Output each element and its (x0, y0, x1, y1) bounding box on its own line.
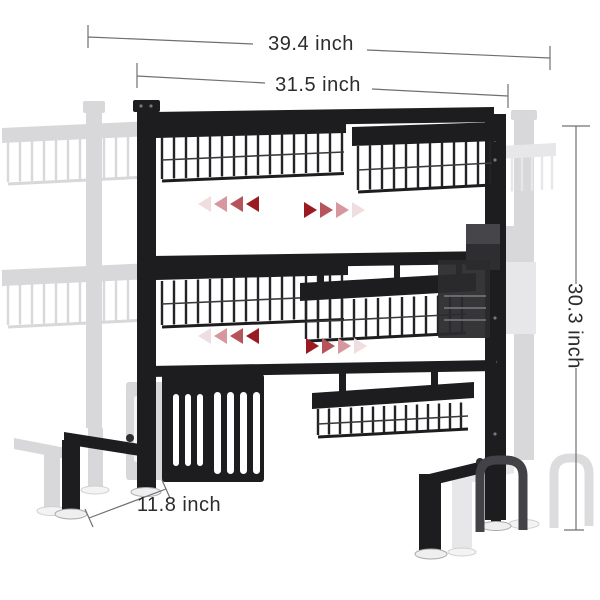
product-dimension-image: 39.4 inch 31.5 inch 30.3 inch 11.8 inch (0, 0, 600, 600)
ghost-cutting-board-holder (554, 458, 589, 528)
bottom-hanging-basket (312, 365, 474, 437)
dimension-label-shelf-width: 31.5 inch (262, 74, 374, 97)
left-front-foot (55, 509, 87, 519)
top-shelf-basket-left (156, 115, 346, 181)
expand-arrows-row2-left-icon (198, 328, 259, 344)
right-front-foot (415, 549, 447, 559)
top-shelf (152, 107, 497, 192)
middle-shelf (152, 224, 500, 341)
left-post (137, 104, 156, 488)
expand-arrows-row1-right-icon (304, 202, 365, 218)
expand-arrows-row1-left-icon (198, 196, 259, 212)
dimension-label-depth: 11.8 inch (134, 494, 224, 517)
ghost-top-basket-extension (2, 121, 152, 184)
right-back-foot (481, 522, 511, 531)
dimension-label-overall-width: 39.4 inch (253, 33, 369, 56)
dimension-label-height: 30.3 inch (563, 283, 586, 369)
utensil-holder (162, 374, 264, 482)
top-shelf-basket-right (352, 122, 497, 192)
bottom-rail-assembly (150, 360, 496, 482)
left-post-cap (133, 100, 160, 112)
ghost-middle-basket-extension (2, 263, 152, 327)
